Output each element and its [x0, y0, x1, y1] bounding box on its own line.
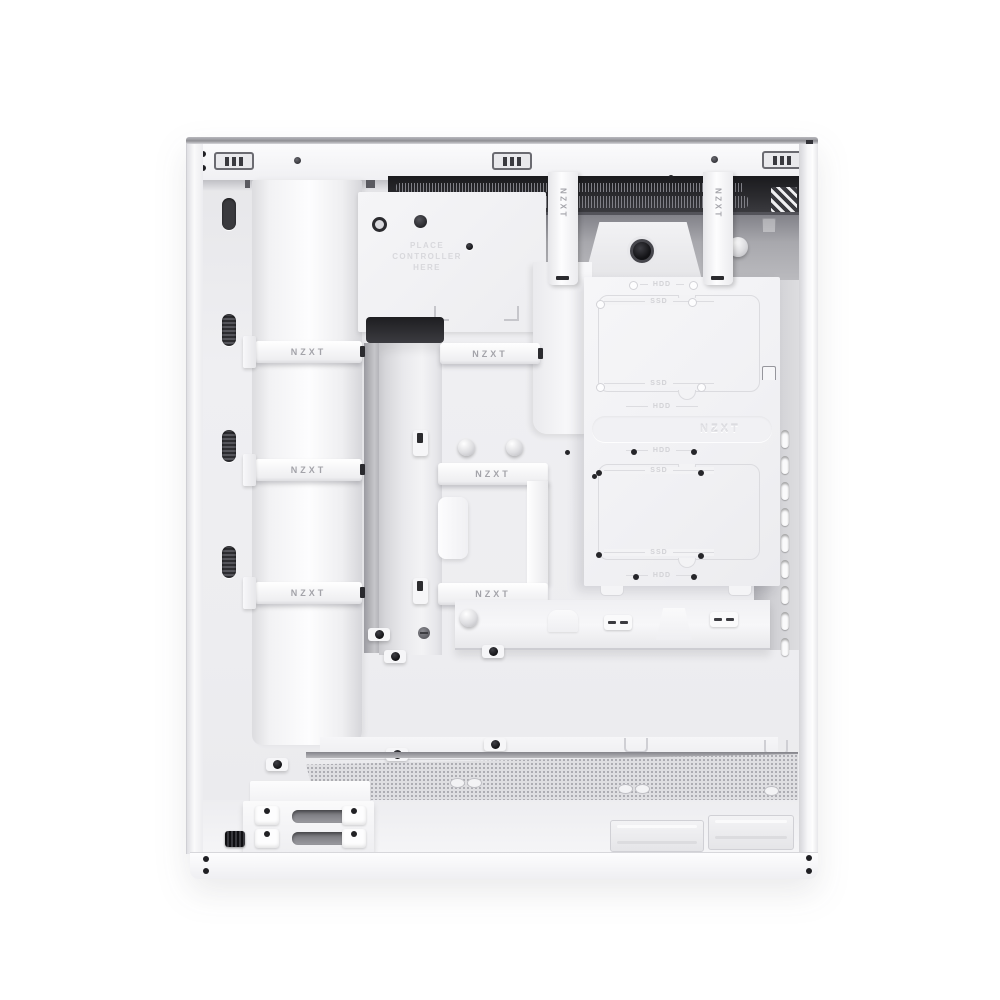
rear-vent-slot — [781, 482, 789, 500]
rivet — [806, 868, 812, 874]
screw — [491, 740, 500, 749]
rear-vent-slot — [781, 612, 789, 630]
screw — [418, 627, 430, 639]
bottom-panel-edge — [190, 852, 818, 879]
rear-vent-slot — [781, 456, 789, 474]
mount-hole — [691, 574, 697, 580]
screw-hole — [294, 157, 301, 164]
strap-clip — [360, 587, 365, 598]
standoff-peg — [458, 439, 475, 456]
mount-tab — [762, 366, 776, 380]
thumbscrew — [630, 239, 654, 263]
mount-tab — [762, 218, 776, 232]
rear-vent-slot — [781, 586, 789, 604]
cage-tab — [342, 829, 366, 848]
rivet — [203, 868, 209, 874]
nzxt-strap-label: NZXT — [291, 347, 327, 357]
front-panel-edge — [186, 144, 203, 854]
bracket-tab — [438, 497, 468, 559]
edge-clip — [604, 615, 632, 630]
mount-hole — [698, 470, 704, 476]
tab-hole — [351, 808, 357, 814]
cable-strap: NZXT — [255, 341, 362, 363]
mount-hole — [596, 300, 605, 309]
controller-hint-line: PLACE — [377, 240, 477, 251]
cable-strap-vertical: NZXT — [548, 172, 578, 285]
top-vent-clip — [762, 151, 802, 169]
screw — [489, 647, 498, 656]
top-vent-clip — [214, 152, 254, 170]
drive-cage-top — [250, 781, 370, 803]
front-cable-cutout-mesh — [222, 430, 236, 462]
rear-vent-slot — [781, 508, 789, 526]
mount-hole — [688, 298, 697, 307]
psu-rail — [610, 820, 704, 852]
frame-tab — [245, 180, 250, 188]
screw — [391, 652, 400, 661]
strap-mount — [243, 577, 256, 609]
channel-clip — [413, 430, 428, 456]
screw-mount — [384, 650, 406, 663]
ssd-label: SSD — [604, 298, 714, 305]
rear-vent-slot — [781, 430, 789, 448]
cable-routing-slot — [366, 317, 444, 343]
mesh-mount-hole — [618, 784, 633, 794]
embossed-panel — [592, 416, 772, 442]
cage-tab — [255, 829, 279, 848]
screw-hole — [711, 156, 718, 163]
pc-case: PLACE CONTROLLER HERE HDD SSD SSD HDD NZ… — [0, 0, 1000, 1000]
alignment-mark — [504, 306, 519, 321]
mount-hole — [691, 449, 697, 455]
screw-mount — [266, 758, 288, 771]
controller-hint-line: HERE — [377, 262, 477, 273]
mount-hole — [629, 281, 638, 290]
screw — [372, 217, 387, 232]
nzxt-strap-label: NZXT — [291, 588, 327, 598]
strap-mount — [243, 336, 256, 368]
cable-strap-vertical: NZXT — [703, 172, 733, 285]
mesh-mount-hole — [764, 786, 779, 796]
standoff-peg — [506, 439, 523, 456]
nzxt-strap-label: NZXT — [291, 465, 327, 475]
mount-hole — [596, 552, 602, 558]
cable-strap: NZXT — [255, 459, 362, 481]
front-cable-cutout — [222, 198, 236, 230]
screw-mount — [482, 645, 504, 658]
mount-hole — [633, 574, 639, 580]
cable-channel — [379, 343, 442, 655]
front-cable-cutout-mesh — [222, 314, 236, 346]
ssd-tray-outline — [598, 295, 760, 392]
psu-rail — [708, 815, 794, 850]
bracket-side — [527, 481, 548, 585]
rivet — [806, 855, 812, 861]
tab-hole — [264, 808, 270, 814]
top-vent-clip — [492, 152, 532, 170]
edge-clip — [710, 612, 738, 627]
channel-clip — [413, 578, 428, 604]
mesh-mount-hole — [450, 778, 465, 788]
hdd-label: HDD — [640, 281, 684, 288]
mesh-mount-hole — [467, 778, 482, 788]
screw — [375, 630, 384, 639]
controller-hint-text: PLACE CONTROLLER HERE — [377, 240, 477, 273]
rear-vent-slot — [781, 638, 789, 656]
top-panel-edge — [186, 137, 818, 144]
rivet — [203, 856, 209, 862]
cable-bundle — [771, 187, 797, 212]
ssd-tray-outline — [598, 464, 760, 560]
nzxt-strap-label: NZXT — [475, 589, 511, 599]
strap-clip — [360, 464, 365, 475]
screw — [273, 760, 282, 769]
rear-panel-edge — [799, 144, 818, 854]
mount-hole — [596, 383, 605, 392]
mount-hole — [631, 449, 637, 455]
mount-hole — [592, 474, 597, 479]
edge-bump — [548, 610, 578, 632]
standoff-peg — [460, 609, 478, 627]
plate-foot-tab — [728, 586, 752, 596]
frame-tab — [366, 180, 375, 188]
plate-foot-tab — [600, 586, 624, 596]
nzxt-embossed-logo: NZXT — [700, 423, 741, 435]
screw-mount — [484, 738, 506, 751]
controller-hint-line: CONTROLLER — [377, 251, 477, 262]
cable-strap: NZXT — [440, 343, 540, 364]
screw — [668, 175, 674, 181]
rear-vent-slot — [781, 560, 789, 578]
product-photo-canvas: PLACE CONTROLLER HERE HDD SSD SSD HDD NZ… — [0, 0, 1000, 1000]
strap-clip — [360, 346, 365, 357]
screw-mount — [368, 628, 390, 641]
mesh-mount-hole — [635, 784, 650, 794]
nzxt-strap-label: NZXT — [714, 188, 723, 285]
cage-thumbscrew — [225, 831, 245, 847]
cable-channel-rail — [364, 343, 379, 653]
strap-mount — [243, 454, 256, 486]
cable-strap: NZXT — [255, 582, 362, 604]
nzxt-strap-label: NZXT — [472, 349, 508, 359]
mount-hole — [697, 383, 706, 392]
tab-hole — [264, 831, 270, 837]
nzxt-strap-label: NZXT — [559, 188, 568, 285]
nzxt-strap-label: NZXT — [475, 469, 511, 479]
strap-clip — [538, 348, 543, 359]
tab-hole — [351, 831, 357, 837]
mount-hole — [689, 281, 698, 290]
front-cable-cutout-mesh — [222, 546, 236, 578]
screw — [414, 215, 427, 228]
hdd-label: HDD — [626, 403, 698, 410]
cable-tie-anchor — [624, 738, 648, 753]
cage-tab — [342, 806, 366, 825]
mount-hole — [565, 450, 570, 455]
rear-vent-slot — [781, 534, 789, 552]
cage-tab — [255, 806, 279, 825]
mount-hole — [698, 553, 704, 559]
